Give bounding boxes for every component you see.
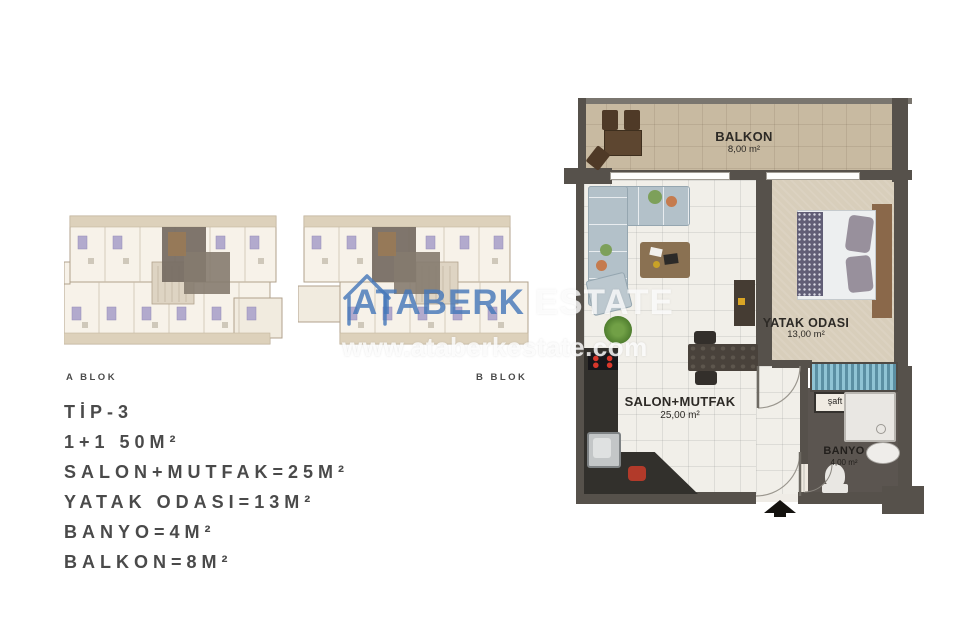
- wall-top: [578, 98, 912, 104]
- balcony-chair-2: [624, 110, 640, 130]
- block-b-label: B BLOK: [476, 372, 527, 383]
- room-label-yatak-odasi: YATAK ODASI 13,00 m²: [756, 316, 856, 341]
- unit-floor-plan: şaft: [576, 98, 924, 522]
- bed-pillow-1: [845, 214, 875, 253]
- site-plan-block-a: [64, 212, 286, 364]
- entry-opening: [756, 494, 798, 502]
- toilet-tank: [822, 484, 848, 493]
- dining-table: [688, 344, 758, 371]
- room-label-balkon: BALKON 8,00 m²: [582, 130, 906, 156]
- spec-line-size: 1+1 50M²: [64, 432, 349, 453]
- wall-bedroom-right: [894, 180, 908, 366]
- hall-floor: [756, 366, 800, 494]
- sofa-accent-pillow: [666, 196, 677, 207]
- dining-chair-bottom: [695, 371, 717, 385]
- coffee-table-tray: [663, 253, 678, 265]
- bed-runner: [797, 212, 823, 296]
- spec-line-balcony: BALKON=8M²: [64, 552, 349, 573]
- unit-type-title: TİP-3: [64, 402, 349, 423]
- wardrobe: [810, 362, 898, 392]
- room-label-banyo: BANYO 4,00 m²: [802, 445, 886, 467]
- dining-chair-top: [694, 331, 716, 344]
- spec-line-salon: SALON+MUTFAK=25M²: [64, 462, 349, 483]
- tv-unit-decor: [738, 298, 745, 305]
- sofa-plant-pillow-2: [600, 244, 612, 256]
- wall-left: [576, 180, 584, 502]
- wall-bath-right: [898, 366, 912, 496]
- balcony-door-salon: [610, 172, 730, 180]
- floorplan-brochure: A BLOK: [0, 0, 966, 630]
- wall-corner-bottom-right: [882, 486, 924, 514]
- cooktop: [588, 353, 618, 370]
- coffee-table-bowl: [653, 261, 660, 268]
- bed-pillow-2: [845, 255, 874, 293]
- kitchen-sink-basin: [593, 438, 611, 458]
- unit-specs: TİP-3 1+1 50M² SALON+MUTFAK=25M² YATAK O…: [64, 402, 349, 582]
- sofa-plant-pillow: [648, 190, 662, 204]
- balcony-chair-1: [602, 110, 618, 130]
- balcony-door-bedroom: [766, 172, 860, 180]
- room-label-salon-mutfak: SALON+MUTFAK 25,00 m²: [600, 395, 760, 421]
- sofa-accent-pillow-2: [596, 260, 607, 271]
- block-a-label: A BLOK: [66, 372, 117, 383]
- kitchen-pot: [628, 466, 646, 481]
- spec-line-bath: BANYO=4M²: [64, 522, 349, 543]
- site-plan-block-b: [298, 212, 530, 370]
- shower: [844, 392, 896, 442]
- spec-line-bedroom: YATAK ODASI=13M²: [64, 492, 349, 513]
- bathroom-door-opening: [800, 464, 808, 492]
- potted-plant: [604, 316, 632, 344]
- shower-drain: [876, 424, 886, 434]
